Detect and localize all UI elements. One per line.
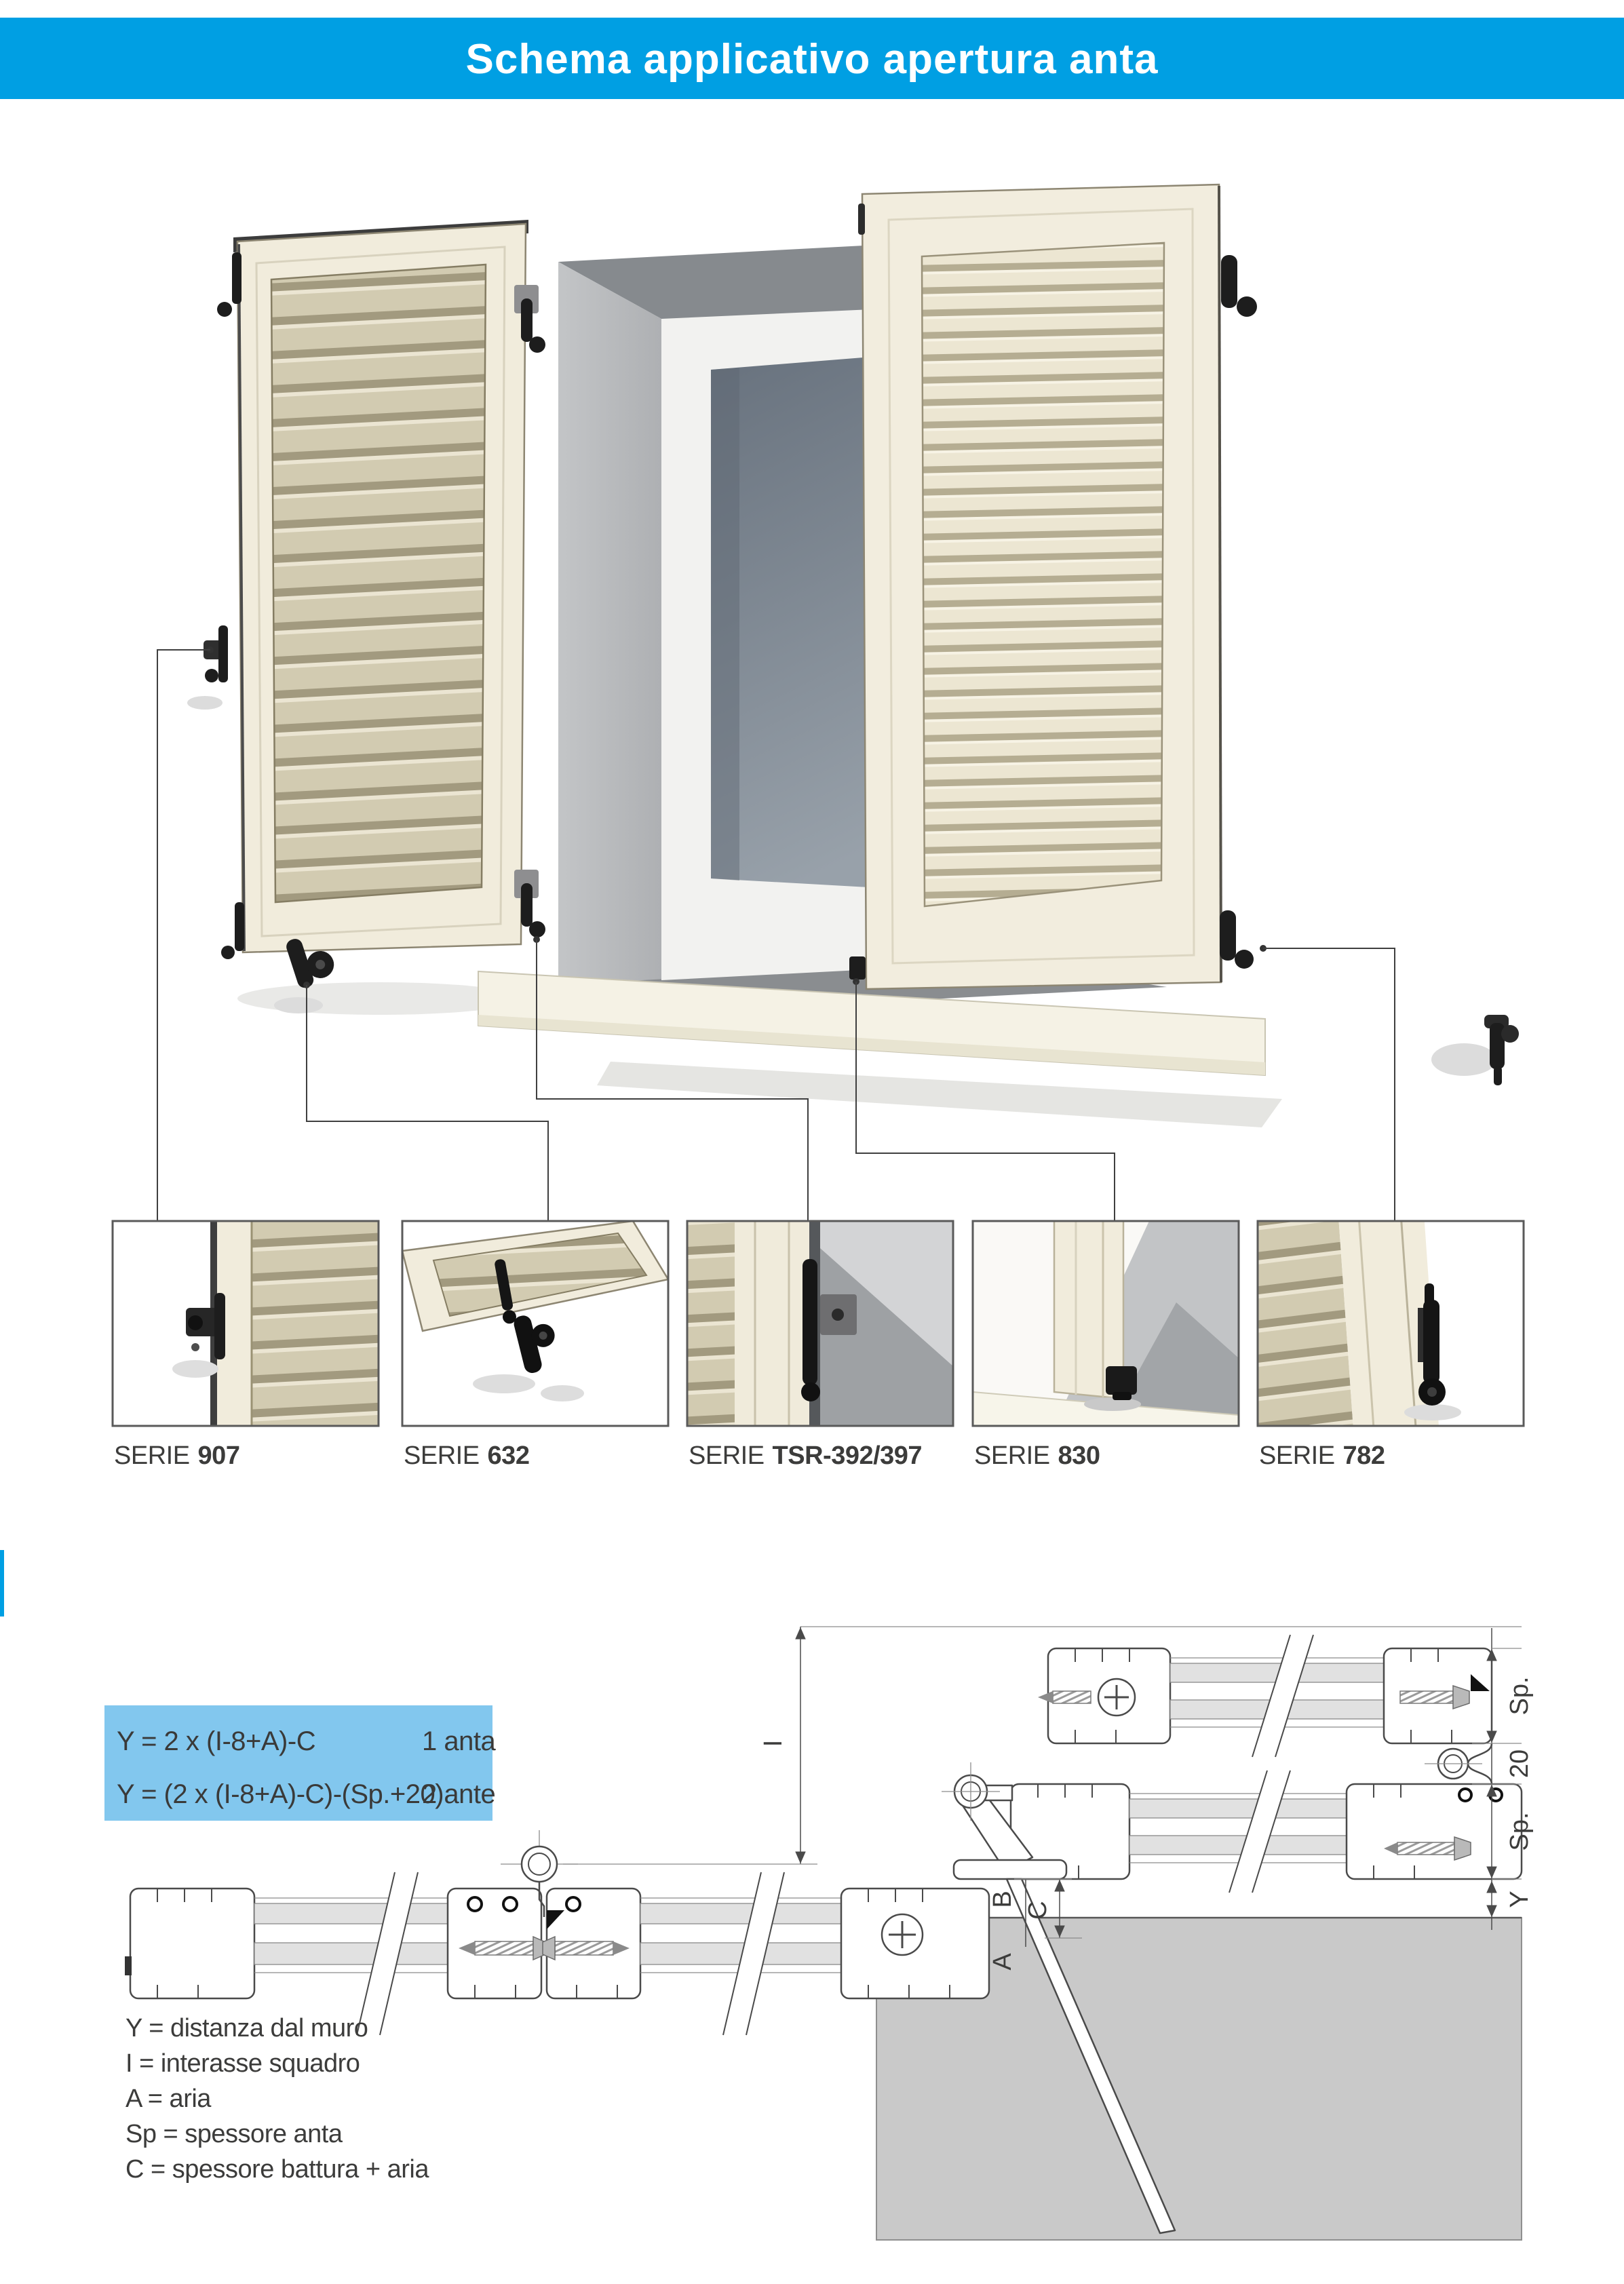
right-shutter (858, 185, 1221, 989)
legend-item-i: I = interasse squadro (125, 2049, 360, 2078)
flag-hinge-barrel-icon (521, 883, 533, 927)
left-shutter (233, 220, 528, 952)
caption-serie-830: SERIE830 (974, 1441, 1100, 1470)
hinge-knuckle-icon (1237, 296, 1257, 317)
dim-a: A (988, 1953, 1017, 1971)
dim-20: 20 (1505, 1749, 1534, 1778)
screw-icon (1038, 1691, 1091, 1703)
flag-hinge-barrel-icon (521, 298, 533, 342)
dim-sp-bottom: Sp. (1505, 1812, 1534, 1851)
callout-serie-907 (157, 650, 210, 1221)
pivot-hinge-icon (1221, 255, 1237, 308)
caption-prefix: SERIE (114, 1441, 190, 1470)
pivot-hinge-icon (1220, 910, 1236, 961)
profile-strip-frame (125, 1830, 989, 2035)
legend-item-sp: Sp = spessore anta (125, 2120, 343, 2148)
right-shutter-top-hinge-fragment (858, 204, 865, 235)
gasket-icon (1459, 1789, 1471, 1801)
dim-sp-top: Sp. (1505, 1676, 1534, 1715)
hinge-knuckle-icon (1235, 950, 1254, 969)
caption-code: 782 (1343, 1441, 1385, 1470)
screw-head-icon (882, 1914, 923, 1955)
gasket-icon (468, 1897, 482, 1911)
gasket-icon (566, 1897, 580, 1911)
caption-prefix: SERIE (404, 1441, 480, 1470)
formula-1: Y = 2 x (I-8+A)-C (117, 1726, 315, 1756)
sill-shadow (597, 1062, 1282, 1127)
hinge-icon (235, 902, 244, 951)
left-shutter-louvers (271, 265, 486, 902)
profile-strip-anta2 (1011, 1770, 1522, 1893)
thumbnail-serie-632 (402, 1221, 668, 1426)
formula-1-applies: 1 anta (422, 1726, 496, 1756)
hinge-pin-icon (205, 669, 218, 682)
legend-item-c: C = spessore battura + aria (125, 2155, 429, 2184)
page-title: Schema applicativo apertura anta (466, 36, 1159, 83)
flag-hinge-barrel-icon (218, 625, 228, 682)
catch-shadow (274, 997, 323, 1013)
formula-2: Y = (2 x (I-8+A)-C)-(Sp.+20) (117, 1779, 444, 1809)
dim-i: I (759, 1740, 788, 1747)
window-shutter-illustration (157, 185, 1519, 1221)
hinge-axis-right (1425, 1743, 1492, 1784)
legend-item-y: Y = distanza dal muro (125, 2014, 368, 2043)
formula-2-applies: 2 ante (422, 1779, 495, 1809)
thumbnail-captions: SERIE907 SERIE632 SERIETSR-392/397 SERIE… (114, 1441, 1385, 1470)
hinge-pin-icon (217, 302, 232, 317)
detail-thumbnails (113, 1201, 1524, 1458)
caption-code: 830 (1058, 1441, 1100, 1470)
thumbnail-serie-830 (973, 1221, 1239, 1426)
caption-serie-907: SERIE907 (114, 1441, 239, 1470)
caption-serie-tsr: SERIETSR-392/397 (689, 1441, 922, 1470)
caption-serie-632: SERIE632 (404, 1441, 529, 1470)
glass-edge-shade (711, 368, 739, 880)
caption-prefix: SERIE (689, 1441, 765, 1470)
dim-b: B (988, 1891, 1017, 1908)
caption-serie-782: SERIE782 (1259, 1441, 1385, 1470)
hinge-pin-icon (529, 336, 545, 353)
gasket-icon (125, 1956, 132, 1975)
dim-c: C (1024, 1901, 1052, 1919)
thumbnail-serie-907 (113, 1221, 379, 1426)
caption-code: 632 (488, 1441, 530, 1470)
gasket-icon (503, 1897, 517, 1911)
thumbnail-serie-tsr-392-397 (687, 1221, 953, 1426)
page-edge-tab (0, 1550, 4, 1617)
caption-code: TSR-392/397 (773, 1441, 923, 1470)
sill-stopper-icon (849, 956, 866, 980)
legend: Y = distanza dal muro I = interasse squa… (125, 2014, 429, 2184)
caption-code: 907 (198, 1441, 240, 1470)
hinge-shadow (187, 696, 223, 710)
formula-box: Y = 2 x (I-8+A)-C 1 anta Y = (2 x (I-8+A… (104, 1705, 496, 1821)
dim-y: Y (1505, 1891, 1534, 1908)
right-shutter-louvers (922, 243, 1164, 906)
loose-pivot-icon (1431, 1015, 1519, 1085)
legend-item-a: A = aria (125, 2085, 212, 2113)
hinge-icon (232, 252, 241, 304)
caption-prefix: SERIE (974, 1441, 1050, 1470)
header-bar: Schema applicativo apertura anta (0, 18, 1624, 99)
screw-head-icon (1098, 1679, 1135, 1716)
catalog-page: Schema applicativo apertura anta (0, 0, 1624, 2284)
callout-serie-782 (1263, 948, 1395, 1221)
profile-strip-anta1 (1038, 1635, 1492, 1757)
reveal-left-face (558, 262, 661, 985)
hinge-pin-icon (221, 946, 235, 959)
hinge-pin-icon (529, 921, 545, 937)
thumbnail-serie-782 (1236, 1201, 1524, 1458)
caption-prefix: SERIE (1259, 1441, 1335, 1470)
